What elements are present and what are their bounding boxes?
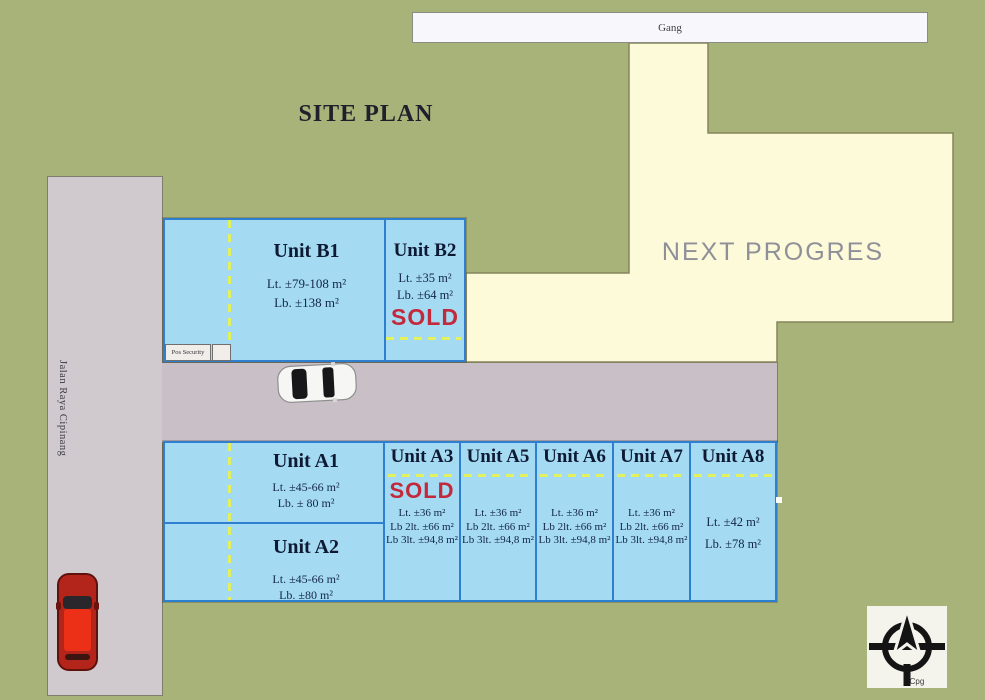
unit-a2: Unit A2 Lt. ±45-66 m² Lb. ±80 m² bbox=[229, 524, 383, 600]
unit-a6-spec-line: Lb 2lt. ±66 m² bbox=[537, 521, 612, 535]
security-post: Pos Security bbox=[165, 344, 211, 361]
unit-a5: Unit A5 Lt. ±36 m² Lb 2lt. ±66 m² Lb 3lt… bbox=[461, 443, 535, 600]
unit-a3-specs: Lt. ±36 m² Lb 2lt. ±66 m² Lb 3lt. ±94,8 … bbox=[385, 507, 459, 548]
unit-a8-spec-line: Lt. ±42 m² bbox=[691, 511, 775, 533]
gang-road: Gang bbox=[412, 12, 928, 43]
building-b: Unit B1 Lt. ±79-108 m² Lb. ±138 m² Unit … bbox=[163, 218, 466, 362]
unit-b1: Unit B1 Lt. ±79-108 m² Lb. ±138 m² bbox=[229, 220, 384, 360]
unit-a7: Unit A7 Lt. ±36 m² Lb 2lt. ±66 m² Lb 3lt… bbox=[614, 443, 689, 600]
red-car-roof bbox=[64, 609, 91, 651]
unit-b2-spec-line: Lb. ±64 m² bbox=[386, 287, 464, 304]
unit-a7-specs: Lt. ±36 m² Lb 2lt. ±66 m² Lb 3lt. ±94,8 … bbox=[614, 507, 689, 548]
next-progress-label: NEXT PROGRES bbox=[638, 238, 908, 267]
unit-a1-spec-line: Lb. ± 80 m² bbox=[229, 495, 383, 511]
white-car-mirror bbox=[333, 398, 337, 402]
unit-b1-title: Unit B1 bbox=[229, 240, 384, 263]
unit-a1-title: Unit A1 bbox=[229, 450, 383, 473]
unit-a3: Unit A3 SOLD Lt. ±36 m² Lb 2lt. ±66 m² L… bbox=[385, 443, 459, 600]
unit-a8-specs: Lt. ±42 m² Lb. ±78 m² bbox=[691, 511, 775, 555]
unit-a2-title: Unit A2 bbox=[229, 536, 383, 559]
white-car bbox=[275, 359, 359, 407]
unit-a7-spec-line: Lt. ±36 m² bbox=[614, 507, 689, 521]
site-plan-canvas: Jalan Raya Cipinang NEXT PROGRES Gang SI… bbox=[0, 0, 985, 700]
unit-a6-spec-line: Lb 3lt. ±94,8 m² bbox=[537, 534, 612, 548]
street-label: Jalan Raya Cipinang bbox=[50, 360, 68, 480]
next-progress-polygon bbox=[466, 43, 953, 362]
lot-dash-line bbox=[388, 474, 456, 477]
unit-a6-specs: Lt. ±36 m² Lb 2lt. ±66 m² Lb 3lt. ±94,8 … bbox=[537, 507, 612, 548]
white-car-windshield bbox=[322, 367, 335, 398]
unit-a8-spec-line: Lb. ±78 m² bbox=[691, 533, 775, 555]
building-a: Unit A1 Lt. ±45-66 m² Lb. ± 80 m² Unit A… bbox=[163, 441, 777, 602]
unit-a6: Unit A6 Lt. ±36 m² Lb 2lt. ±66 m² Lb 3lt… bbox=[537, 443, 612, 600]
red-car-mirror bbox=[94, 602, 99, 610]
unit-a2-spec-line: Lb. ±80 m² bbox=[229, 587, 383, 603]
unit-a5-title: Unit A5 bbox=[461, 446, 535, 468]
unit-b2-title: Unit B2 bbox=[386, 240, 464, 262]
lot-dash-line bbox=[694, 474, 772, 477]
lot-dash-line bbox=[386, 337, 461, 340]
white-car-rear-window bbox=[291, 369, 308, 400]
white-marker-dot bbox=[776, 497, 782, 503]
unit-a8: Unit A8 Lt. ±42 m² Lb. ±78 m² bbox=[691, 443, 775, 600]
unit-a3-title: Unit A3 bbox=[385, 446, 459, 468]
unit-a3-spec-line: Lt. ±36 m² bbox=[385, 507, 459, 521]
red-car-windshield bbox=[63, 596, 92, 609]
white-car-mirror bbox=[331, 362, 335, 366]
next-progress-area bbox=[460, 38, 960, 368]
compass-label: Cpg bbox=[910, 677, 925, 686]
unit-a3-sold-badge: SOLD bbox=[385, 478, 459, 504]
unit-a6-title: Unit A6 bbox=[537, 446, 612, 468]
compass: Cpg bbox=[867, 606, 947, 688]
unit-b1-spec-line: Lt. ±79-108 m² bbox=[229, 274, 384, 293]
unit-b2-spec-line: Lt. ±35 m² bbox=[386, 270, 464, 287]
access-road-horizontal bbox=[162, 362, 778, 443]
unit-b2-sold-badge: SOLD bbox=[386, 304, 464, 331]
page-title: SITE PLAN bbox=[276, 101, 456, 128]
unit-a7-title: Unit A7 bbox=[614, 446, 689, 468]
unit-a5-spec-line: Lb 3lt. ±94,8 m² bbox=[461, 534, 535, 548]
unit-a1-spec-line: Lt. ±45-66 m² bbox=[229, 479, 383, 495]
unit-a5-spec-line: Lb 2lt. ±66 m² bbox=[461, 521, 535, 535]
unit-b1-specs: Lt. ±79-108 m² Lb. ±138 m² bbox=[229, 274, 384, 312]
white-car-body bbox=[277, 363, 357, 403]
lot-dash-line bbox=[617, 474, 686, 477]
lot-dash-line bbox=[464, 474, 532, 477]
unit-a3-spec-line: Lb 3lt. ±94,8 m² bbox=[385, 534, 459, 548]
gang-label: Gang bbox=[658, 22, 682, 34]
unit-a5-spec-line: Lt. ±36 m² bbox=[461, 507, 535, 521]
security-post-annex bbox=[212, 344, 231, 361]
unit-a7-spec-line: Lb 2lt. ±66 m² bbox=[614, 521, 689, 535]
security-post-label: Pos Security bbox=[172, 349, 205, 356]
unit-a8-title: Unit A8 bbox=[691, 446, 775, 468]
unit-a2-specs: Lt. ±45-66 m² Lb. ±80 m² bbox=[229, 571, 383, 603]
unit-a3-spec-line: Lb 2lt. ±66 m² bbox=[385, 521, 459, 535]
unit-b1-spec-line: Lb. ±138 m² bbox=[229, 293, 384, 312]
unit-a6-spec-line: Lt. ±36 m² bbox=[537, 507, 612, 521]
lot-dash-line bbox=[540, 474, 609, 477]
unit-b2-specs: Lt. ±35 m² Lb. ±64 m² bbox=[386, 270, 464, 304]
red-car-rear-window bbox=[65, 654, 90, 660]
unit-a5-specs: Lt. ±36 m² Lb 2lt. ±66 m² Lb 3lt. ±94,8 … bbox=[461, 507, 535, 548]
unit-a1: Unit A1 Lt. ±45-66 m² Lb. ± 80 m² bbox=[229, 443, 383, 522]
unit-a7-spec-line: Lb 3lt. ±94,8 m² bbox=[614, 534, 689, 548]
unit-a1-specs: Lt. ±45-66 m² Lb. ± 80 m² bbox=[229, 479, 383, 511]
unit-a2-spec-line: Lt. ±45-66 m² bbox=[229, 571, 383, 587]
red-car-mirror bbox=[56, 602, 61, 610]
red-car bbox=[55, 572, 100, 672]
